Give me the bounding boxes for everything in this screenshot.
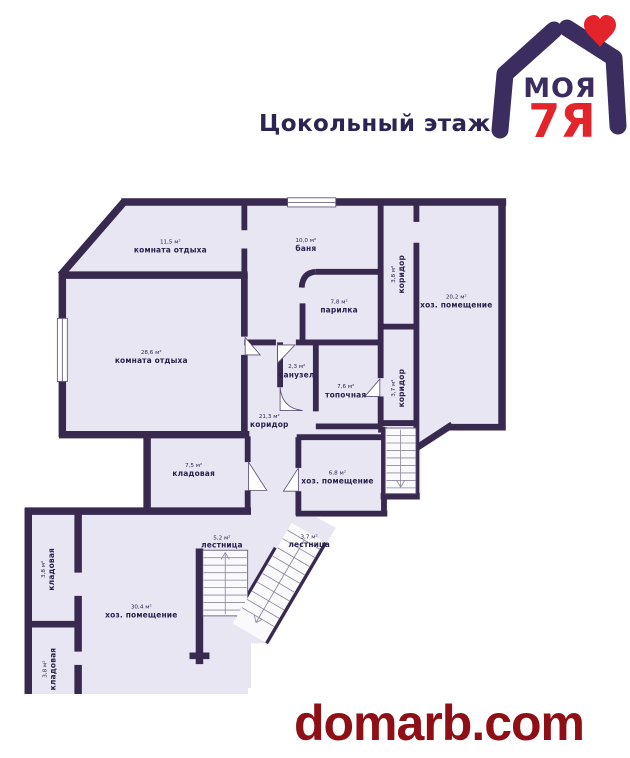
- svg-text:3,8 м²: 3,8 м²: [390, 266, 397, 283]
- svg-text:кладовая: кладовая: [49, 648, 58, 691]
- svg-text:кладовая: кладовая: [172, 469, 215, 478]
- svg-text:комната отдыха: комната отдыха: [134, 246, 207, 255]
- room-label-banya: 10,0 м² баня: [295, 237, 316, 253]
- svg-text:30,4 м²: 30,4 м²: [131, 603, 152, 610]
- svg-text:коридор: коридор: [397, 368, 406, 407]
- svg-text:хоз. помещение: хоз. помещение: [105, 611, 177, 620]
- svg-text:20,2 м²: 20,2 м²: [446, 293, 467, 300]
- svg-text:коридор: коридор: [250, 420, 289, 429]
- svg-text:7,5 м²: 7,5 м²: [185, 462, 202, 469]
- svg-text:санузел: санузел: [279, 370, 315, 379]
- svg-text:11,5 м²: 11,5 м²: [160, 239, 181, 246]
- svg-text:топочная: топочная: [325, 390, 366, 399]
- svg-text:баня: баня: [295, 244, 316, 253]
- svg-text:лестница: лестница: [201, 541, 243, 550]
- svg-text:7,6 м²: 7,6 м²: [337, 383, 354, 390]
- watermark-text: domarb.com: [294, 694, 584, 752]
- svg-text:21,3 м²: 21,3 м²: [259, 413, 280, 420]
- svg-text:парилка: парилка: [320, 306, 358, 315]
- svg-text:хоз. помещение: хоз. помещение: [301, 477, 373, 486]
- svg-text:10,0 м²: 10,0 м²: [295, 237, 316, 244]
- watermark-strip: domarb.com: [248, 688, 630, 758]
- svg-text:6,8 м²: 6,8 м²: [329, 470, 346, 477]
- svg-text:7,8 м²: 7,8 м²: [330, 298, 347, 305]
- staircase-52: [203, 550, 248, 616]
- svg-text:кладовая: кладовая: [47, 548, 56, 591]
- svg-text:комната отдыха: комната отдыха: [115, 356, 188, 365]
- svg-text:хоз. помещение: хоз. помещение: [420, 301, 492, 310]
- svg-text:3,8 м²: 3,8 м²: [40, 561, 47, 578]
- floor-plan-page: Цокольный этаж МОЯ 7Я: [0, 0, 630, 758]
- svg-text:28,6 м²: 28,6 м²: [141, 349, 162, 356]
- svg-text:лестница: лестница: [288, 540, 330, 549]
- staircase-right: [385, 428, 416, 494]
- svg-text:коридор: коридор: [397, 255, 406, 294]
- svg-text:3,7 м²: 3,7 м²: [390, 380, 397, 397]
- svg-text:2,3 м²: 2,3 м²: [288, 363, 305, 370]
- floor-plan-drawing: 11,5 м² комната отдыха 10,0 м² баня 3,8 …: [0, 0, 630, 758]
- svg-text:3,8 м²: 3,8 м²: [42, 660, 49, 677]
